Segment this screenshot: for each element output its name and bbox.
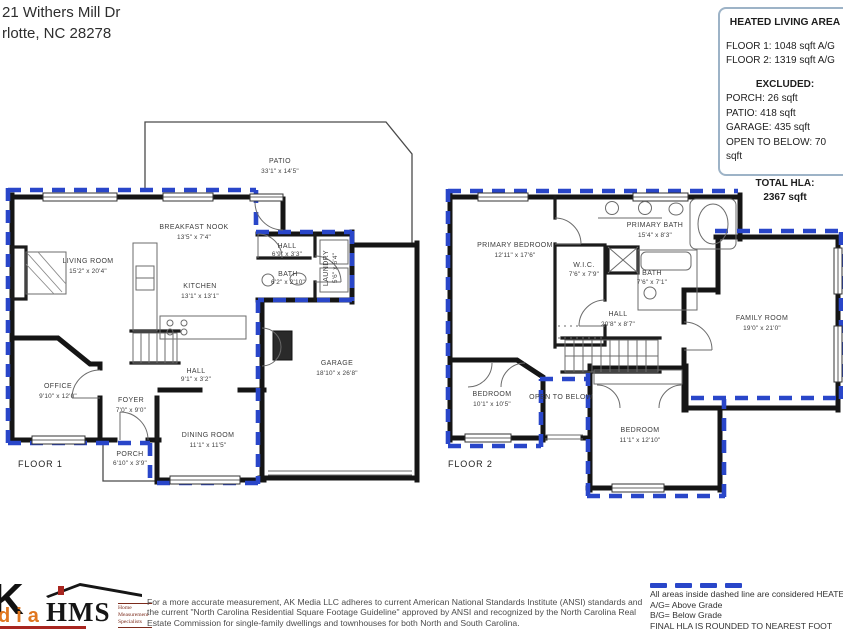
- svg-text:6'2" x 2'10": 6'2" x 2'10": [271, 279, 305, 286]
- fireplace: [12, 247, 66, 299]
- floor2-plan: PRIMARY BEDROOM 12'11" x 17'6" PRIMARY B…: [430, 185, 843, 525]
- svg-text:6'9" x 3'3": 6'9" x 3'3": [272, 251, 302, 258]
- svg-text:10'1" x 10'5": 10'1" x 10'5": [473, 401, 511, 408]
- svg-text:33'1" x 14'5": 33'1" x 14'5": [261, 168, 299, 175]
- hla-excluded-patio: PATIO: 418 sqft: [726, 107, 843, 122]
- room-label-family-room: FAMILY ROOM 19'0" x 21'0": [736, 315, 788, 332]
- hms-logo: HMS Home Measurement Specialists: [46, 585, 151, 630]
- heated-living-area-box: HEATED LIVING AREA FLOOR 1: 1048 sqft A/…: [718, 7, 843, 176]
- svg-text:PRIMARY BATH: PRIMARY BATH: [627, 222, 684, 229]
- floorplan-page: 21 Withers Mill Dr rlotte, NC 28278 HEAT…: [0, 0, 843, 632]
- svg-text:19'0" x 21'0": 19'0" x 21'0": [743, 325, 781, 332]
- svg-text:9'10" x 12'0": 9'10" x 12'0": [39, 393, 77, 400]
- ak-logo-dia-letters: dia: [0, 605, 45, 628]
- svg-text:LAUNDRY: LAUNDRY: [323, 250, 330, 286]
- svg-text:7'6" x 7'1": 7'6" x 7'1": [637, 279, 667, 286]
- room-label-primary-bath: PRIMARY BATH 15'4" x 8'3": [627, 222, 684, 239]
- svg-text:PATIO: PATIO: [269, 158, 291, 165]
- address-line1: 21 Withers Mill Dr: [2, 2, 120, 23]
- wic-shelving: [558, 326, 605, 338]
- hms-chimney-icon: [58, 586, 64, 595]
- garage-door: [268, 471, 412, 475]
- svg-text:BEDROOM: BEDROOM: [473, 391, 512, 398]
- dashed-line-sample: [650, 580, 843, 586]
- svg-text:12'11" x 17'6": 12'11" x 17'6": [495, 252, 536, 259]
- svg-text:BATH: BATH: [642, 270, 662, 277]
- svg-text:HALL: HALL: [608, 311, 627, 318]
- svg-text:BATH: BATH: [278, 271, 298, 278]
- hla-excluded-title: EXCLUDED:: [726, 78, 843, 93]
- room-label-wic: W.I.C. 7'6" x 7'9": [569, 262, 599, 278]
- room-label-living-room: LIVING ROOM 15'2" x 20'4": [62, 258, 113, 275]
- legend-line3: B/G= Below Grade: [650, 610, 843, 621]
- svg-text:15'2" x 20'4": 15'2" x 20'4": [69, 268, 107, 275]
- svg-text:FOYER: FOYER: [118, 397, 144, 404]
- room-label-garage: GARAGE 18'10" x 26'8": [316, 360, 357, 377]
- room-label-bedroom1: BEDROOM 10'1" x 10'5": [473, 391, 512, 408]
- svg-text:6'10" x 3'9": 6'10" x 3'9": [113, 460, 147, 467]
- svg-text:FAMILY ROOM: FAMILY ROOM: [736, 315, 788, 322]
- room-label-primary-bedroom: PRIMARY BEDROOM 12'11" x 17'6": [477, 242, 553, 259]
- room-label-office: OFFICE 9'10" x 12'0": [39, 383, 77, 400]
- legend-line4: FINAL HLA IS ROUNDED TO NEAREST FOOT: [650, 621, 843, 632]
- room-label-breakfast-nook: BREAKFAST NOOK 13'5" x 7'4": [159, 224, 228, 241]
- legend-line1: All areas inside dashed line are conside…: [650, 589, 843, 600]
- legend-line2: A/G= Above Grade: [650, 600, 843, 611]
- svg-text:OFFICE: OFFICE: [44, 383, 72, 390]
- floor1-label: FLOOR 1: [18, 459, 63, 469]
- open-to-below-railing: [545, 435, 583, 439]
- floor2-label: FLOOR 2: [448, 459, 493, 469]
- bedroom2-closet: [594, 370, 682, 408]
- room-label-bedroom2: BEDROOM 11'1" x 12'10": [620, 427, 661, 444]
- svg-text:13'1" x 13'1": 13'1" x 13'1": [181, 293, 219, 300]
- property-address: 21 Withers Mill Dr rlotte, NC 28278: [2, 2, 120, 44]
- floor1-plan: PATIO 33'1" x 14'5" BREAKFAST NOOK 13'5"…: [0, 105, 430, 525]
- svg-text:7'6" x 7'9": 7'6" x 7'9": [569, 271, 599, 278]
- svg-text:W.I.C.: W.I.C.: [573, 262, 594, 269]
- room-label-hall1-small: HALL 6'9" x 3'3": [272, 243, 302, 258]
- svg-text:LIVING ROOM: LIVING ROOM: [62, 258, 113, 265]
- room-label-bath2: BATH 7'6" x 7'1": [637, 270, 667, 286]
- svg-text:11'1" x 11'5": 11'1" x 11'5": [190, 442, 227, 449]
- svg-text:DINING ROOM: DINING ROOM: [182, 432, 235, 439]
- garage-storage: [273, 331, 292, 360]
- svg-text:PORCH: PORCH: [116, 451, 143, 458]
- room-label-dining-room: DINING ROOM 11'1" x 11'5": [182, 432, 235, 449]
- hla-excluded-porch: PORCH: 26 sqft: [726, 92, 843, 107]
- room-label-patio: PATIO 33'1" x 14'5": [261, 158, 299, 175]
- floor2-exterior-walls: [450, 195, 840, 490]
- room-label-open-to-below: OPEN TO BELOW: [529, 394, 593, 401]
- svg-text:GARAGE: GARAGE: [321, 360, 353, 367]
- hla-excluded-otb: OPEN TO BELOW: 70 sqft: [726, 136, 843, 165]
- svg-text:7'0" x 9'0": 7'0" x 9'0": [116, 407, 146, 414]
- svg-text:20'8" x 8'7": 20'8" x 8'7": [601, 321, 635, 328]
- room-label-hall2: HALL 20'8" x 8'7": [601, 311, 635, 328]
- heated-area-legend: All areas inside dashed line are conside…: [650, 580, 843, 631]
- hla-title: HEATED LIVING AREA: [726, 16, 843, 31]
- address-line2: rlotte, NC 28278: [2, 23, 120, 44]
- svg-text:HALL: HALL: [186, 368, 205, 375]
- svg-text:13'5" x 7'4": 13'5" x 7'4": [177, 234, 211, 241]
- room-label-foyer: FOYER 7'0" x 9'0": [116, 397, 146, 414]
- svg-text:OPEN TO BELOW: OPEN TO BELOW: [529, 394, 593, 401]
- svg-text:15'4" x 8'3": 15'4" x 8'3": [638, 232, 672, 239]
- hms-logo-text: HMS: [46, 597, 111, 628]
- floor1-stairs: [133, 333, 177, 363]
- svg-text:18'10" x 26'8": 18'10" x 26'8": [316, 370, 357, 377]
- hla-floor2: FLOOR 2: 1319 sqft A/G: [726, 54, 843, 69]
- svg-text:PRIMARY BEDROOM: PRIMARY BEDROOM: [477, 242, 553, 249]
- hla-floor1: FLOOR 1: 1048 sqft A/G: [726, 40, 843, 55]
- svg-text:11'1" x 12'10": 11'1" x 12'10": [620, 437, 661, 444]
- room-label-kitchen: KITCHEN 13'1" x 13'1": [181, 283, 219, 300]
- svg-text:BREAKFAST NOOK: BREAKFAST NOOK: [159, 224, 228, 231]
- svg-text:HALL: HALL: [277, 243, 296, 250]
- svg-text:KITCHEN: KITCHEN: [183, 283, 217, 290]
- room-label-hall1: HALL 9'1" x 3'2": [181, 368, 211, 383]
- room-label-porch: PORCH 6'10" x 3'9": [113, 451, 147, 467]
- measurement-disclaimer: For a more accurate measurement, AK Medi…: [147, 597, 647, 628]
- svg-text:9'1" x 3'2": 9'1" x 3'2": [181, 376, 211, 383]
- hla-excluded-garage: GARAGE: 435 sqft: [726, 121, 843, 136]
- svg-text:5'6" x 6'4": 5'6" x 6'4": [332, 253, 339, 283]
- svg-text:BEDROOM: BEDROOM: [621, 427, 660, 434]
